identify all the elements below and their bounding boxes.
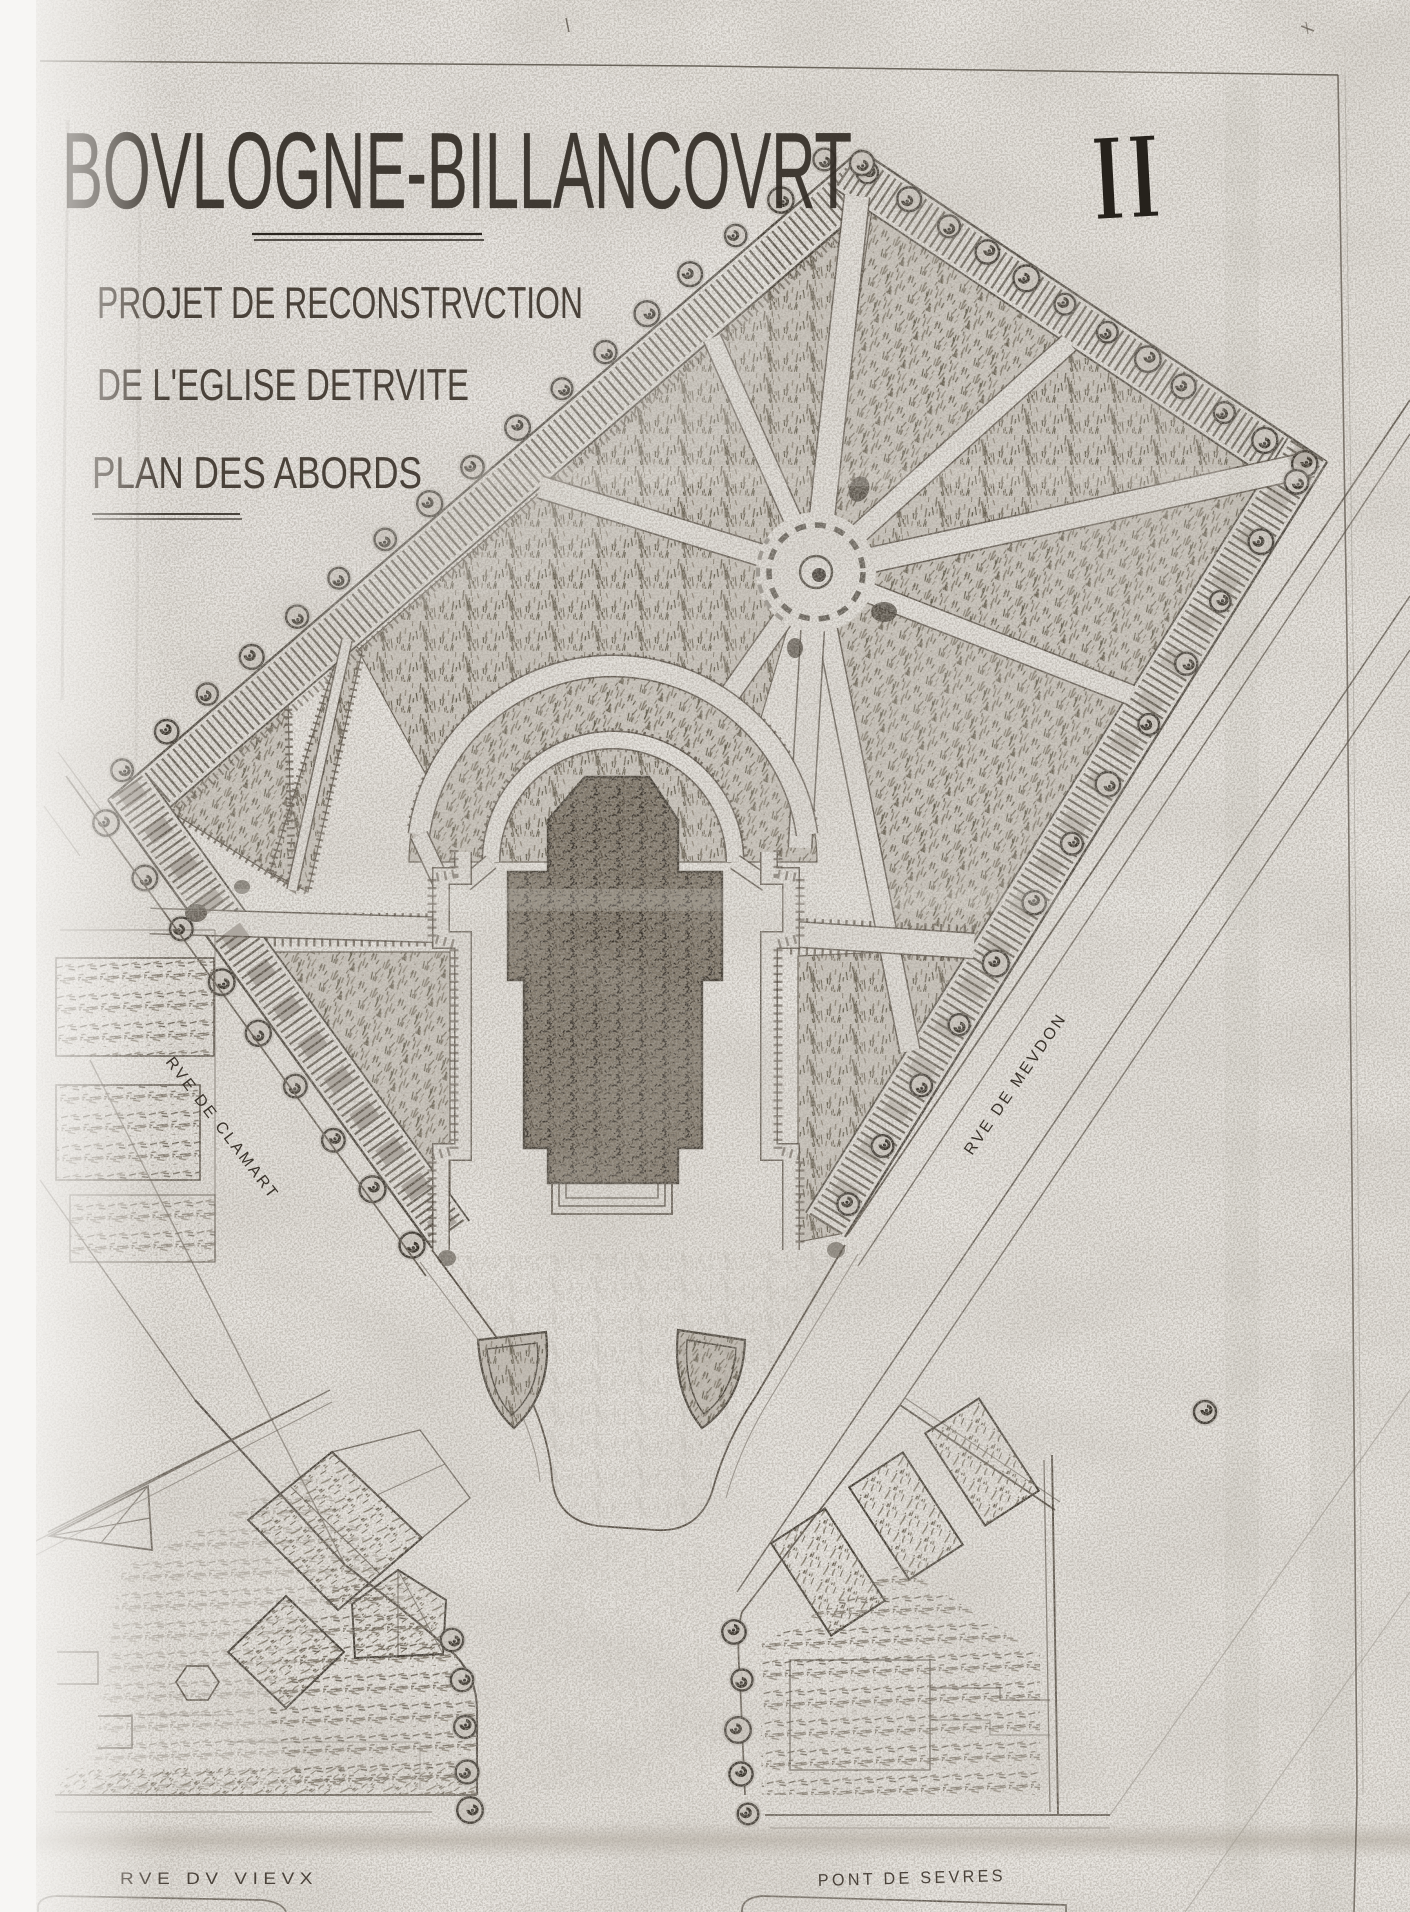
svg-text:BOVLOGNE-BILLANCOVRT: BOVLOGNE-BILLANCOVRT: [62, 111, 852, 232]
svg-text:PROJET DE RECONSTRVCTION: PROJET DE RECONSTRVCTION: [97, 278, 583, 328]
